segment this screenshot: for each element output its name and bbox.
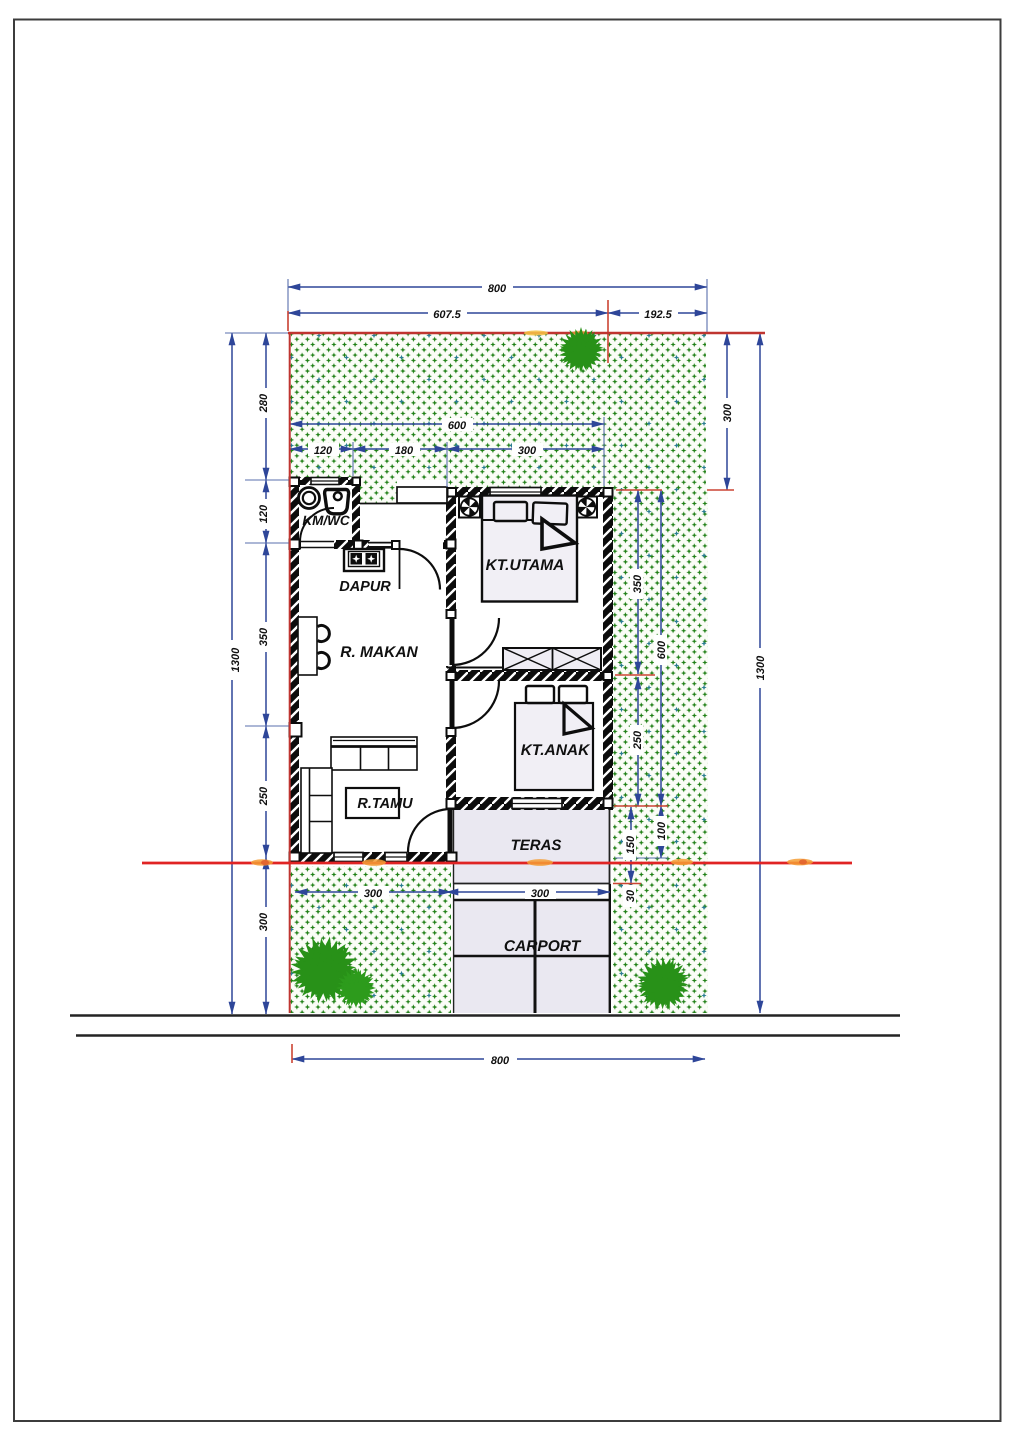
svg-text:800: 800 — [488, 283, 507, 295]
svg-text:800: 800 — [491, 1055, 510, 1067]
svg-text:300: 300 — [518, 445, 537, 457]
svg-text:150: 150 — [625, 835, 637, 854]
svg-text:R.TAMU: R.TAMU — [357, 796, 413, 812]
svg-text:DAPUR: DAPUR — [339, 579, 391, 595]
svg-text:350: 350 — [632, 574, 644, 593]
svg-text:250: 250 — [258, 786, 270, 806]
svg-text:250: 250 — [632, 730, 644, 750]
svg-text:600: 600 — [448, 420, 467, 432]
svg-text:192.5: 192.5 — [644, 309, 672, 321]
svg-text:600: 600 — [656, 640, 668, 659]
svg-text:607.5: 607.5 — [433, 309, 461, 321]
svg-text:300: 300 — [364, 888, 383, 900]
svg-text:R. MAKAN: R. MAKAN — [340, 644, 418, 661]
svg-text:120: 120 — [314, 445, 333, 457]
svg-text:120: 120 — [258, 504, 270, 523]
svg-text:300: 300 — [722, 403, 734, 422]
svg-text:CARPORT: CARPORT — [504, 938, 582, 955]
svg-text:KT.ANAK: KT.ANAK — [521, 742, 591, 759]
svg-text:TERAS: TERAS — [511, 837, 562, 854]
svg-text:KT.UTAMA: KT.UTAMA — [486, 557, 565, 574]
svg-text:180: 180 — [395, 445, 414, 457]
svg-text:30: 30 — [625, 889, 637, 902]
svg-text:1300: 1300 — [230, 647, 242, 672]
svg-text:300: 300 — [531, 888, 550, 900]
svg-text:280: 280 — [258, 393, 270, 413]
svg-text:KM/WC: KM/WC — [302, 513, 349, 528]
svg-text:350: 350 — [258, 627, 270, 646]
svg-text:1300: 1300 — [755, 655, 767, 680]
svg-text:100: 100 — [656, 821, 668, 840]
svg-text:300: 300 — [258, 912, 270, 931]
